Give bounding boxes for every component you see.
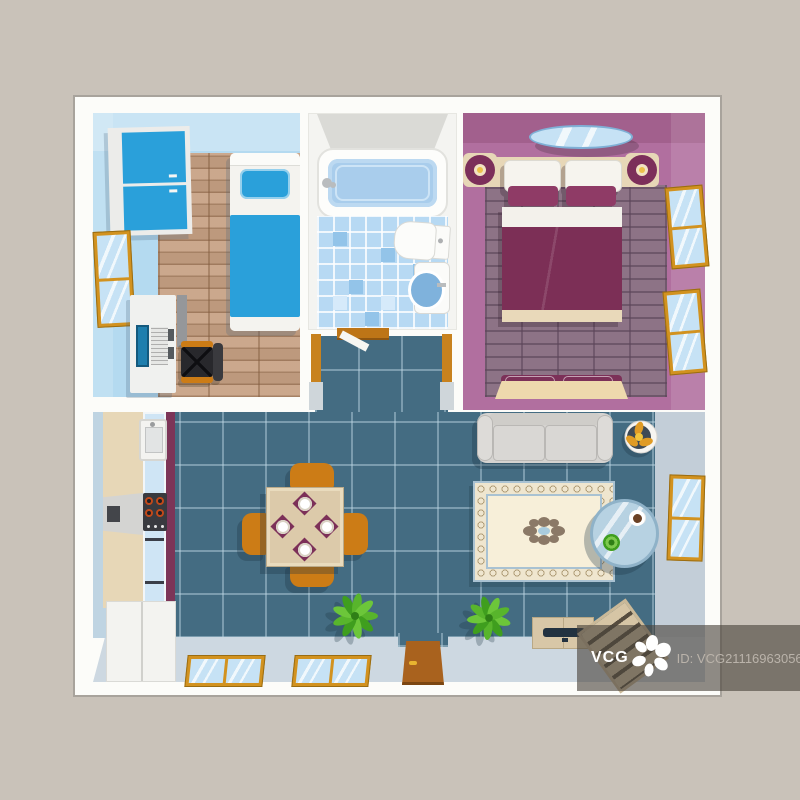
bed-footboard: [502, 310, 622, 322]
entrance-hall: [315, 328, 448, 414]
window-icon: [184, 655, 265, 687]
laptop-keyboard: [151, 327, 168, 365]
cooker-hood-icon: [103, 493, 143, 535]
place-setting: [294, 493, 316, 515]
desk: [130, 295, 176, 393]
pillow: [240, 169, 290, 199]
vcg-flower-logo-icon: [629, 633, 675, 684]
watermark-band: VCG ID: VCG211169630560: [577, 625, 800, 691]
toilet-bowl: [393, 220, 438, 261]
counter-edge: [166, 412, 175, 608]
kitchen-sink-icon: [139, 419, 167, 461]
wardrobe: [108, 126, 193, 236]
sofa-armrest: [597, 415, 613, 461]
sofa-armrest: [477, 415, 493, 461]
sofa-cushion: [545, 425, 597, 461]
window-icon: [667, 474, 706, 561]
place-setting: [272, 516, 294, 538]
accent-pillow: [508, 186, 558, 206]
nightstand-left: [463, 153, 497, 187]
table-fan-icon: [623, 420, 659, 454]
bathtub-icon: [317, 148, 448, 218]
sofa-backrest: [489, 413, 601, 425]
bed-footboard: [230, 317, 300, 331]
bath-water: [328, 159, 437, 207]
potted-plant-icon: [330, 591, 380, 646]
room-bedroom-study: [93, 113, 300, 397]
sofa: [477, 413, 613, 463]
faucet-icon: [437, 283, 446, 287]
dining-table: [267, 488, 343, 566]
chair-armrest: [181, 376, 213, 383]
stock-image-canvas: VCG ID: VCG211169630560: [0, 0, 800, 800]
hall-floor: [315, 336, 448, 414]
blanket: [502, 227, 622, 310]
small-plant-icon: [603, 534, 620, 551]
laptop-icon: [136, 325, 168, 367]
burner: [145, 497, 153, 505]
burner: [145, 509, 153, 517]
dining-chair: [342, 513, 368, 555]
window-icon: [662, 289, 707, 376]
accent-pillow: [566, 186, 616, 206]
dining-chair: [290, 463, 334, 489]
basin-bowl: [408, 270, 445, 310]
wash-basin-icon: [406, 262, 448, 312]
nightstand-right: [625, 153, 659, 187]
window-icon: [664, 185, 709, 270]
wardrobe-handle: [169, 189, 177, 192]
watermark-id: ID: VCG211169630560: [677, 651, 800, 666]
ceiling-lamp-icon: [529, 125, 633, 149]
lamp-icon: [639, 167, 645, 173]
burner: [156, 509, 164, 517]
lamp-icon: [477, 167, 483, 173]
chair-backrest: [213, 343, 223, 381]
chair-seat: [181, 347, 213, 377]
stove-icon: [143, 493, 167, 531]
door-key-icon: [409, 661, 417, 665]
window-icon: [291, 655, 371, 687]
toilet-icon: [393, 218, 450, 262]
rug-medallion: [522, 516, 566, 551]
room-master-bedroom: [463, 113, 705, 410]
office-chair: [179, 341, 223, 383]
watermark-brand: VCG: [591, 649, 629, 667]
coffee-table: [593, 502, 656, 565]
lower-cabinet: [106, 601, 176, 682]
faucet-icon: [322, 178, 332, 188]
faucet-icon: [150, 422, 155, 427]
sofa-cushion: [493, 425, 545, 461]
blanket: [230, 215, 300, 317]
room-bathroom: [308, 113, 457, 330]
potted-plant-icon: [465, 594, 513, 647]
door-jamb: [442, 334, 452, 382]
laptop-screen: [136, 325, 149, 367]
wardrobe-handle: [169, 174, 177, 177]
floor-plan-card: [75, 97, 720, 695]
double-bed: [502, 160, 622, 320]
single-bed: [230, 153, 300, 331]
door-jamb: [311, 334, 321, 382]
wardrobe-doors: [122, 131, 188, 231]
place-setting: [294, 539, 316, 561]
side-cabinet: [177, 295, 187, 347]
bed-headboard: [230, 153, 300, 166]
foot-bench: [495, 375, 628, 399]
place-setting: [316, 516, 338, 538]
dining-chair: [242, 513, 268, 555]
burner: [156, 497, 164, 505]
bed-sheet: [502, 207, 622, 227]
entrance-door-icon: [402, 641, 444, 685]
